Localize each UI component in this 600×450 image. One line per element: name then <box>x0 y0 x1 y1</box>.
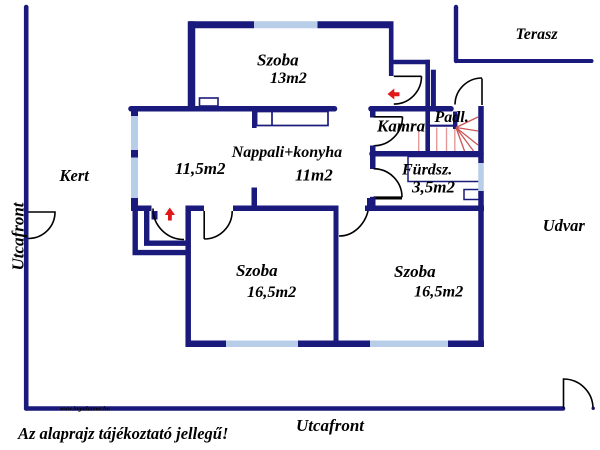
svg-text:16,5m2: 16,5m2 <box>247 282 296 301</box>
svg-text:Az alaprajz tájékoztató jelleg: Az alaprajz tájékoztató jellegű! <box>17 424 228 443</box>
svg-text:Utcafront: Utcafront <box>9 201 28 270</box>
svg-text:www.ingatlannet.hu: www.ingatlannet.hu <box>60 407 110 413</box>
svg-text:Padl.: Padl. <box>434 109 469 126</box>
svg-text:11,5m2: 11,5m2 <box>175 159 226 178</box>
svg-text:Terasz: Terasz <box>516 26 559 43</box>
svg-text:Fürdsz.: Fürdsz. <box>401 162 452 179</box>
svg-text:11m2: 11m2 <box>295 166 333 185</box>
svg-text:Szoba: Szoba <box>257 51 299 70</box>
svg-text:3,5m2: 3,5m2 <box>411 178 455 197</box>
svg-text:Szoba: Szoba <box>394 262 436 281</box>
svg-text:Kert: Kert <box>59 166 90 185</box>
svg-text:13m2: 13m2 <box>270 69 307 87</box>
svg-text:Utcafront: Utcafront <box>296 416 365 435</box>
svg-text:Kamra: Kamra <box>376 117 426 136</box>
svg-text:Szoba: Szoba <box>236 261 278 280</box>
svg-text:Nappali+konyha: Nappali+konyha <box>231 144 342 161</box>
svg-text:16,5m2: 16,5m2 <box>414 282 463 301</box>
svg-text:Udvar: Udvar <box>543 216 586 235</box>
